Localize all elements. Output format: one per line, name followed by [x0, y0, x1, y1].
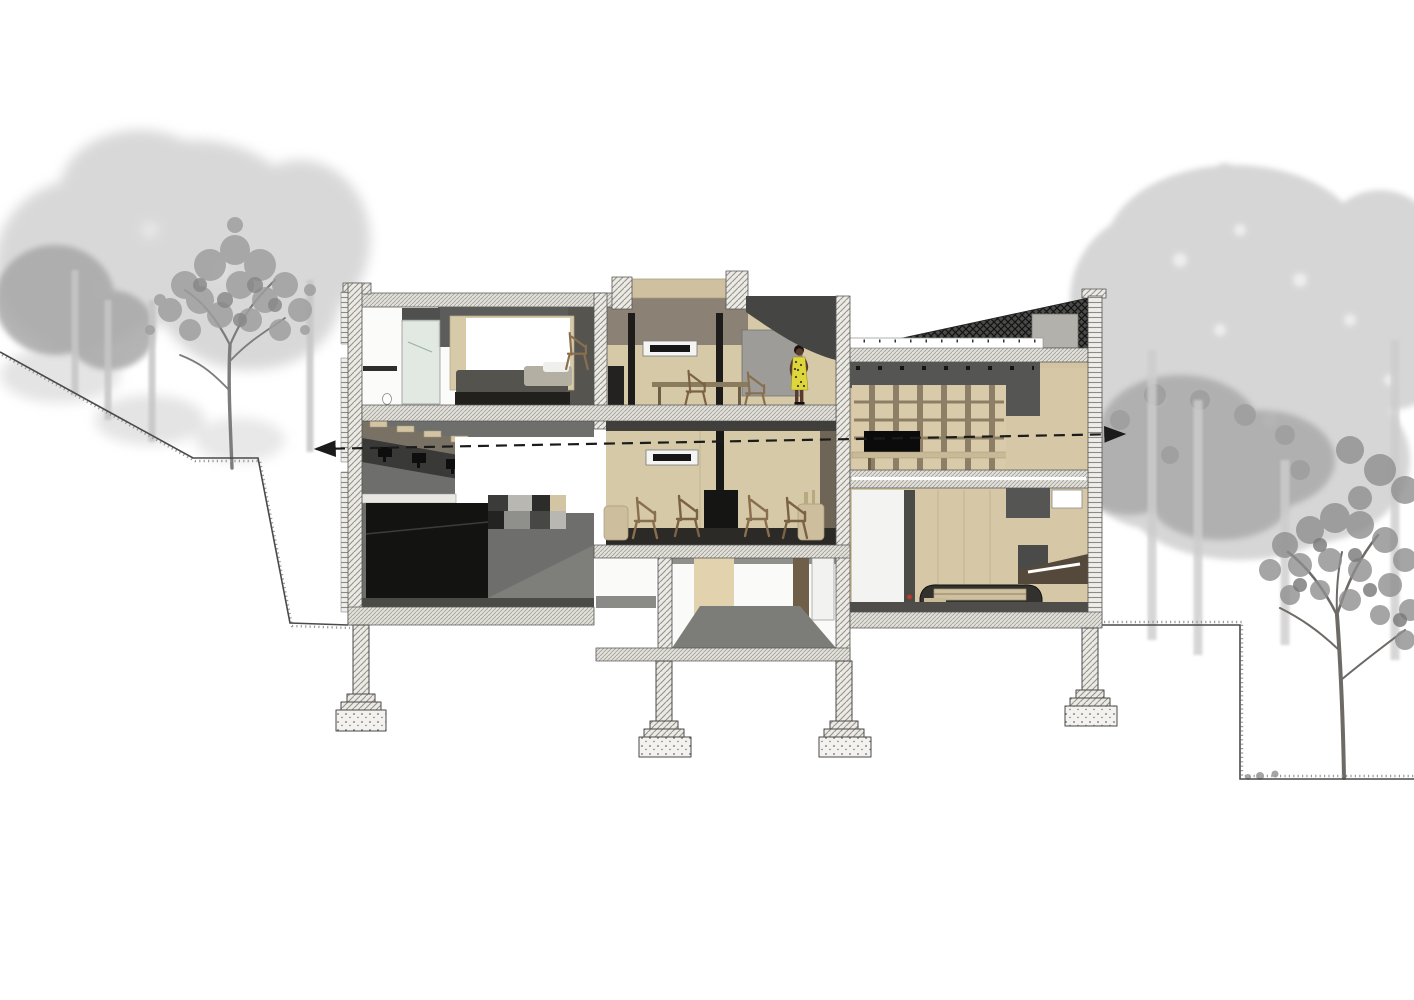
stove-flue	[716, 430, 724, 492]
garage-dark-wall	[904, 490, 915, 602]
towel-rail	[363, 366, 397, 371]
shower-screen	[402, 320, 440, 404]
barrel-table	[604, 506, 628, 540]
east-mid-wall	[836, 296, 850, 661]
basement-wood-panel	[694, 552, 734, 614]
roof-slab-right	[836, 348, 1088, 362]
basement-slab	[596, 648, 850, 661]
roof-walkway-band	[845, 338, 1043, 348]
basement-door-white	[812, 556, 834, 620]
toilet-fixture	[383, 394, 392, 405]
counter-leg	[868, 458, 871, 470]
room-basement	[596, 552, 836, 652]
hall-ceiling-band	[850, 362, 1010, 388]
red-marker	[907, 595, 912, 600]
clerestory-cap	[612, 277, 632, 309]
side-cabinet	[608, 366, 624, 407]
roof-slab-left	[348, 293, 630, 307]
clerestory-box	[630, 279, 728, 298]
ground-slab-right	[850, 612, 1102, 628]
terrain-right	[1102, 622, 1414, 779]
slab-white-line	[852, 477, 1086, 480]
desk-leg	[738, 387, 741, 407]
post	[716, 313, 723, 407]
pillow	[543, 362, 569, 372]
bottle	[812, 490, 815, 504]
garage-white-wall	[852, 490, 904, 602]
bed-base	[455, 392, 570, 405]
west-wall	[348, 283, 362, 625]
leg	[800, 390, 803, 403]
shoe	[800, 402, 805, 405]
garage-dark-corner	[1006, 488, 1050, 518]
tv	[864, 431, 920, 452]
tree-cluster-right	[1060, 163, 1414, 780]
pier-4	[1065, 628, 1117, 726]
face	[796, 348, 804, 356]
garage-window	[1052, 490, 1082, 508]
section-drawing	[0, 0, 1414, 1000]
ac-vent-slot	[650, 345, 690, 352]
kitchen-floor	[362, 598, 594, 607]
living-floor-slab	[594, 545, 850, 558]
clerestory-cap	[726, 271, 748, 309]
pier-2	[639, 661, 691, 757]
room-living	[604, 430, 836, 545]
terrain-line	[1102, 625, 1414, 779]
mosaic-panels	[488, 495, 566, 529]
east-wall	[1088, 296, 1102, 626]
basement-column	[658, 552, 672, 652]
pier-3	[819, 661, 871, 757]
desk-leg	[658, 387, 661, 407]
terrain-hatch-ticks	[1104, 622, 1414, 776]
ground-slab-left	[348, 607, 594, 625]
leg	[795, 390, 798, 403]
bed	[450, 316, 574, 405]
slab-soffit	[606, 421, 836, 431]
post	[628, 313, 635, 407]
room-stair-kitchen	[362, 421, 595, 607]
basement-nook-floor	[596, 596, 656, 608]
ac-vent-slot	[653, 454, 691, 461]
upper-floor-slab	[362, 405, 836, 421]
section-drawing-canvas	[0, 0, 1414, 1000]
ceiling-strip	[362, 494, 456, 503]
pier-1	[336, 625, 386, 731]
tree-cluster-left	[0, 130, 370, 468]
hall-dark-corner	[1006, 362, 1040, 416]
building-section	[336, 271, 1117, 757]
yellow-dress	[791, 357, 808, 390]
room-bedroom	[362, 305, 594, 407]
bottle	[804, 492, 808, 504]
room-garage	[850, 488, 1088, 617]
kitchen-cabinets	[366, 503, 488, 600]
shoe	[795, 402, 800, 405]
